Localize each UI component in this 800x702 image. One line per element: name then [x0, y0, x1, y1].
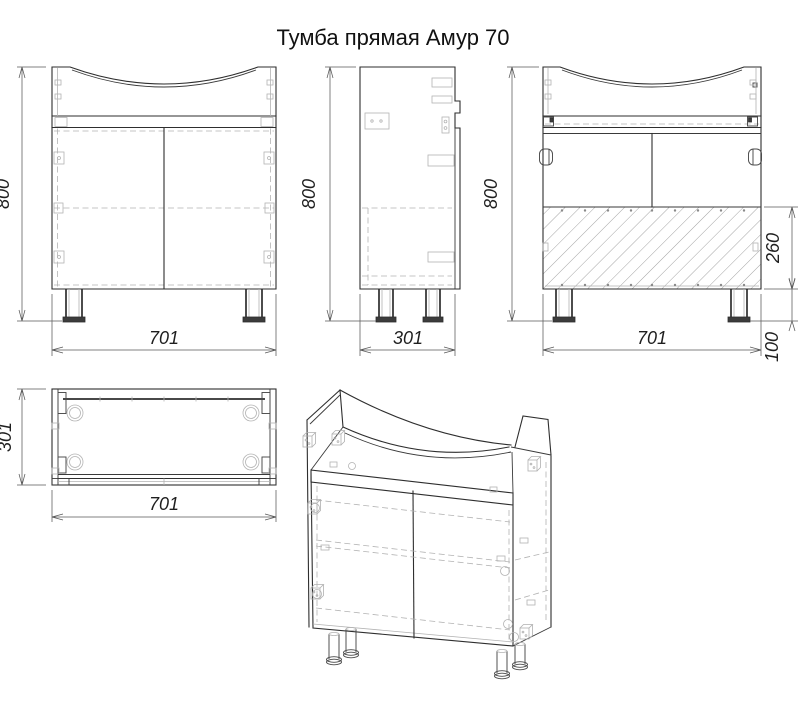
back-dim-height: 800	[481, 67, 552, 321]
top-front-edge	[52, 475, 276, 486]
back-view: 800 701 260 100	[481, 67, 798, 362]
top-hinge-plates	[58, 393, 270, 474]
top-dim-width: 701	[52, 490, 276, 522]
iso-front-face	[311, 470, 513, 646]
side-depth-label: 301	[393, 328, 423, 348]
back-panel-label: 260	[763, 233, 783, 264]
front-width-label: 701	[149, 328, 179, 348]
top-depth-label: 301	[0, 422, 15, 452]
front-dim-height: 800	[0, 67, 62, 321]
front-dim-width: 701	[52, 294, 276, 356]
iso-hidden-lines	[316, 462, 549, 642]
back-legs	[553, 289, 750, 322]
back-dim-leg: 100	[750, 279, 798, 362]
side-outline	[360, 67, 460, 289]
front-view: 800 701	[0, 67, 276, 356]
iso-hardware-glyphs	[303, 431, 541, 642]
top-outline	[52, 389, 276, 485]
side-height-label: 800	[299, 179, 319, 209]
drawing-title: Тумба прямая Амур 70	[276, 25, 509, 50]
side-hidden-details	[362, 78, 454, 285]
back-rail-brackets	[544, 117, 758, 126]
top-width-label: 701	[149, 494, 179, 514]
drawing-page: Тумба прямая Амур 70	[0, 0, 800, 702]
front-height-label: 800	[0, 179, 13, 209]
top-view: 301 701	[0, 389, 276, 522]
iso-view	[303, 390, 551, 679]
back-height-label: 800	[481, 179, 501, 209]
back-dim-width: 701	[543, 294, 761, 356]
back-width-label: 701	[637, 328, 667, 348]
side-dim-height: 800	[299, 67, 376, 321]
top-leg-circles	[67, 405, 259, 470]
back-dim-panel: 260	[763, 207, 798, 289]
back-hanging-hooks	[540, 149, 762, 165]
top-dim-depth: 301	[0, 389, 46, 485]
side-view: 800 301	[299, 67, 460, 356]
back-panel-hatch	[544, 208, 761, 289]
front-legs	[63, 289, 265, 322]
iso-door-gap	[413, 491, 414, 638]
back-leg-label: 100	[762, 332, 782, 362]
top-wall-marks	[52, 423, 276, 474]
side-legs	[376, 289, 443, 322]
technical-drawing-canvas: Тумба прямая Амур 70	[0, 0, 800, 702]
iso-legs	[327, 628, 528, 679]
